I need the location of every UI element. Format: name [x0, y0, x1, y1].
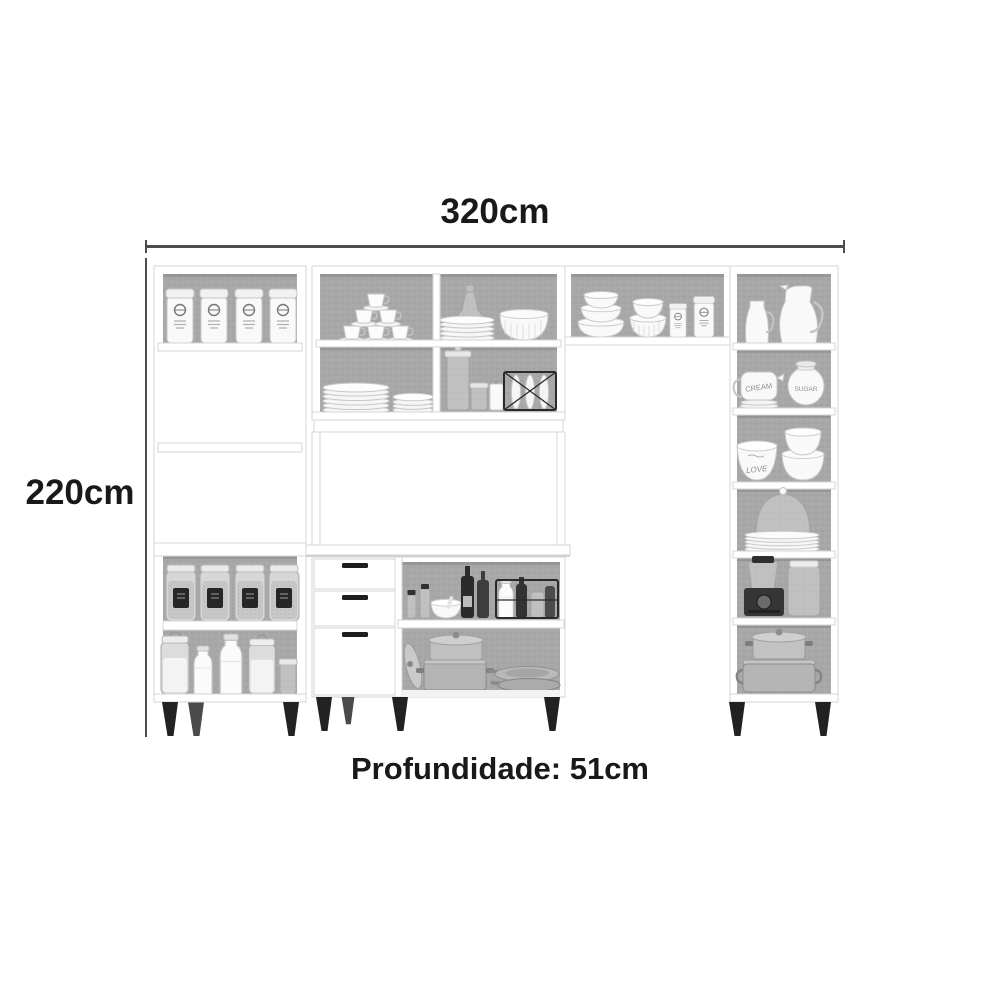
- door-handle: [342, 632, 368, 637]
- cabinet-legs: [162, 702, 299, 736]
- wire-plate-rack: [504, 372, 556, 410]
- cabinet-legs: [729, 702, 831, 736]
- right-tall-cabinet: CREAM SUGAR LOVE: [729, 266, 838, 736]
- upper-hutch-cabinet: [312, 266, 565, 432]
- sugar-label: SUGAR: [794, 386, 817, 393]
- bridge-cabinet: [565, 266, 730, 345]
- product-image-canvas: 320cm 220cm Profundidade: 51cm: [0, 0, 1000, 1000]
- left-cabinet: [154, 266, 306, 736]
- kitchen-cabinet-illustration: CREAM SUGAR LOVE: [0, 0, 1000, 1000]
- stacked-bowls: [578, 292, 624, 338]
- base-cabinet: [306, 545, 570, 731]
- ruffled-bowls: [630, 299, 666, 338]
- drawer-handle: [342, 563, 368, 568]
- drawer-handle: [342, 595, 368, 600]
- hutch-side-panels: [312, 432, 565, 545]
- cabinet-legs: [316, 697, 560, 731]
